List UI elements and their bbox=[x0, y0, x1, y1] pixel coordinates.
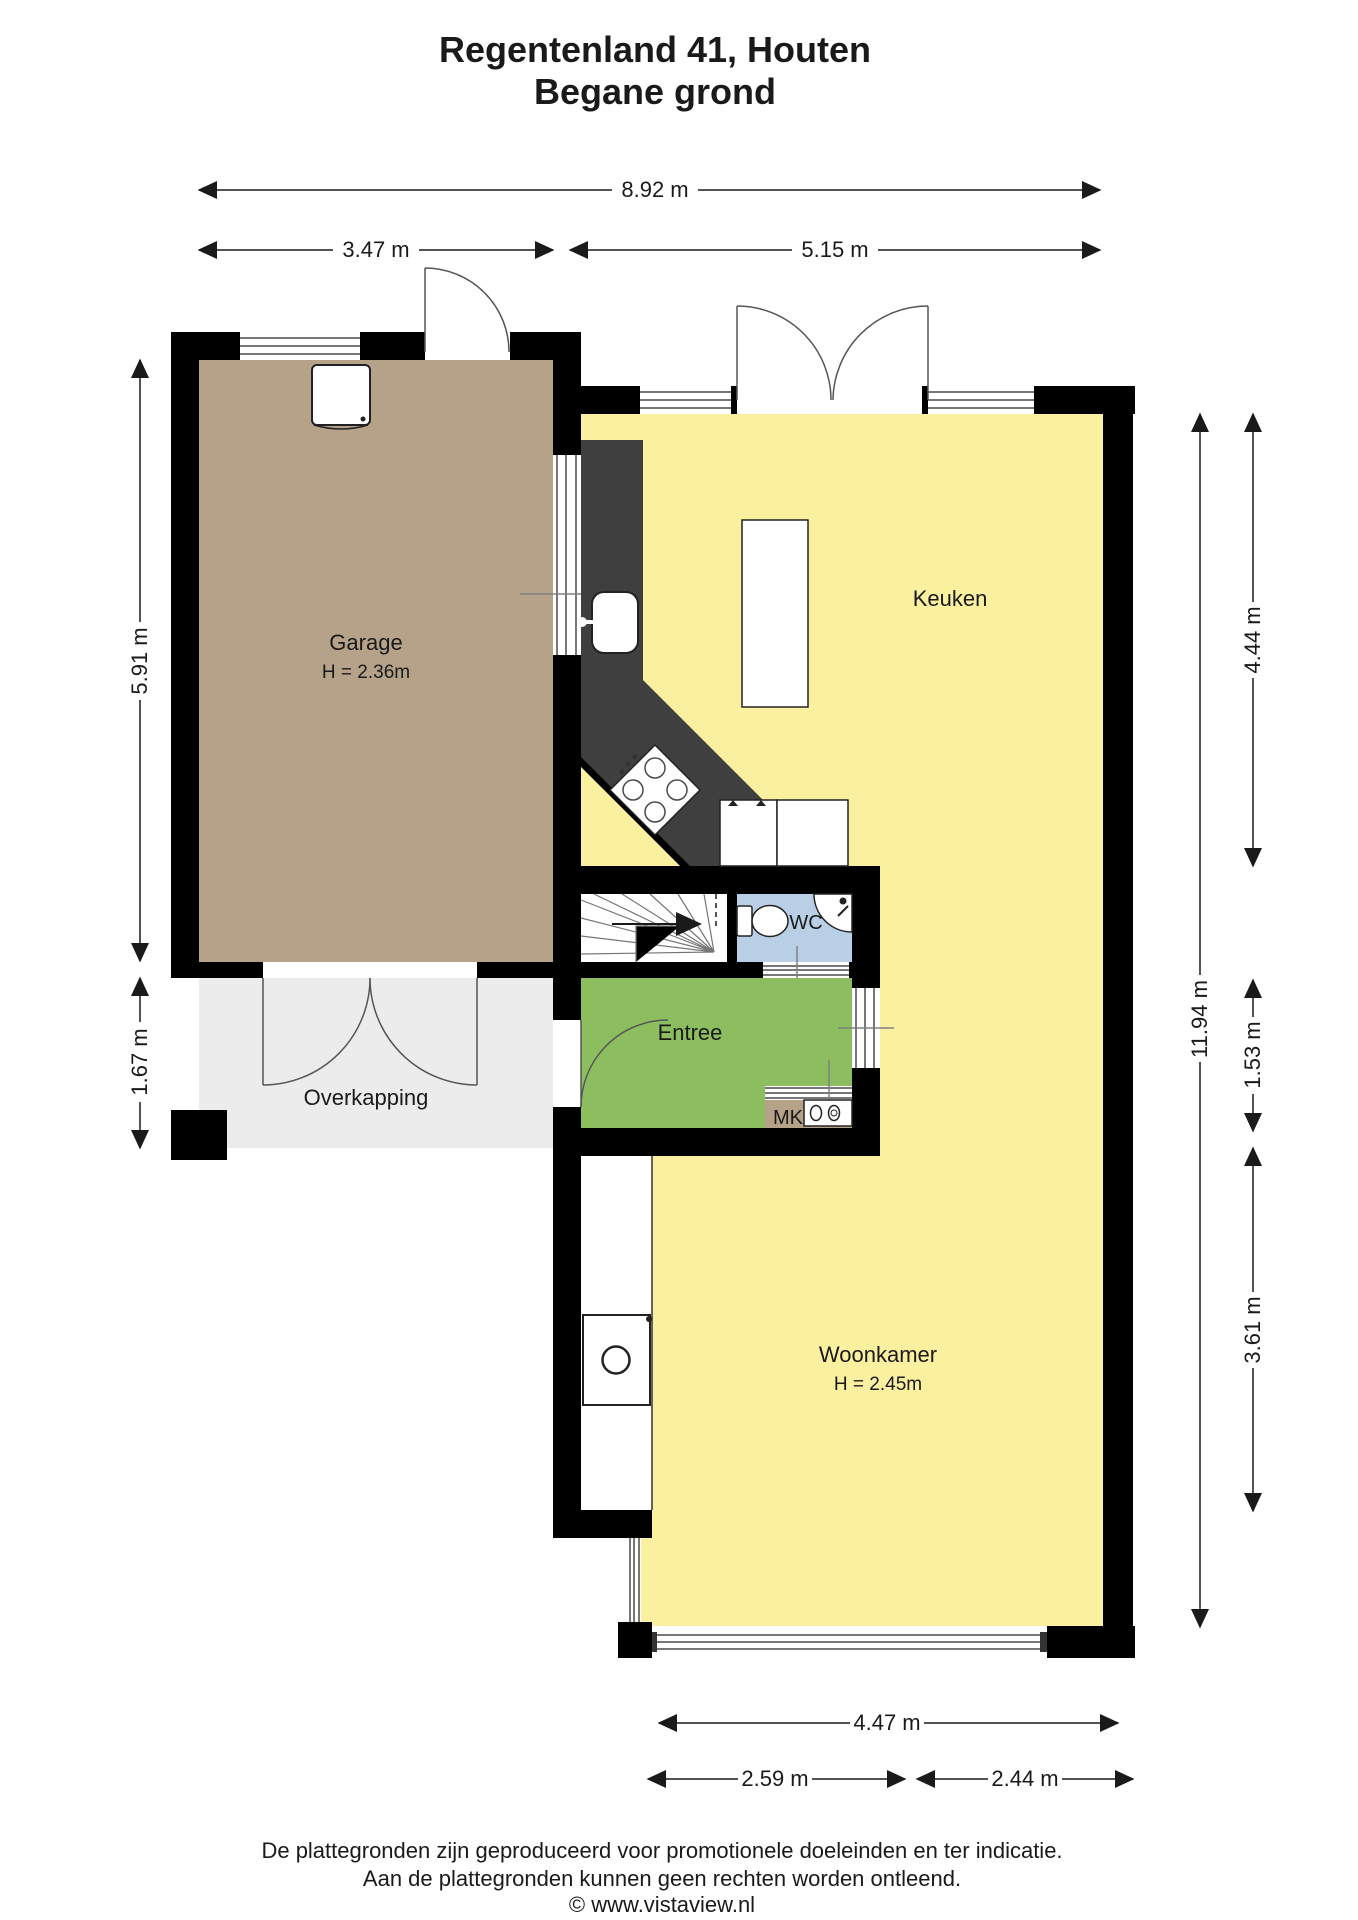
svg-text:8.92 m: 8.92 m bbox=[621, 177, 688, 202]
mk-label: MK bbox=[773, 1107, 804, 1129]
svg-text:5.91 m: 5.91 m bbox=[127, 627, 152, 694]
wall-west-woonkamer bbox=[553, 1107, 581, 1510]
wall-southeast-corner bbox=[1047, 1626, 1135, 1658]
footer-disclaimer: De plattegronden zijn geproduceerd voor … bbox=[261, 1838, 1062, 1917]
overkapping-label: Overkapping bbox=[304, 1085, 429, 1110]
wall-garage-bottom-right bbox=[477, 962, 553, 978]
wall-kitchen-hall bbox=[581, 866, 880, 894]
wall-garage-kitchen-upper bbox=[553, 332, 581, 455]
woonkamer-label: Woonkamer bbox=[819, 1342, 937, 1367]
wall-overkapping-post bbox=[171, 1110, 227, 1160]
floor-areas bbox=[199, 360, 1103, 1626]
wall-entree-bottom bbox=[553, 1128, 880, 1156]
kitchen-cabinets bbox=[720, 800, 848, 866]
svg-text:2.59 m: 2.59 m bbox=[741, 1766, 808, 1791]
corridor-floor bbox=[880, 866, 1103, 1156]
svg-text:5.15 m: 5.15 m bbox=[801, 237, 868, 262]
svg-text:4.44 m: 4.44 m bbox=[1240, 606, 1265, 673]
title-address: Regentenland 41, Houten bbox=[439, 29, 871, 70]
wall-stairs-bottom bbox=[581, 962, 763, 978]
footer-line-2: Aan de plattegronden kunnen geen rechten… bbox=[363, 1866, 961, 1891]
dim-right-total: 11.94 m bbox=[1187, 414, 1212, 1627]
woonkamer-height-label: H = 2.45m bbox=[834, 1374, 922, 1395]
dim-top-total: 8.92 m bbox=[199, 177, 1100, 202]
dim-right-kitchen: 4.44 m bbox=[1240, 414, 1265, 866]
plan-title: Regentenland 41, Houten Begane grond bbox=[439, 29, 871, 112]
dim-bottom-left: 2.59 m bbox=[648, 1766, 905, 1791]
jamb-kitchen-door-left bbox=[731, 386, 737, 414]
garage-height-label: H = 2.36m bbox=[322, 662, 410, 683]
dim-top-left: 3.47 m bbox=[199, 237, 553, 262]
wall-garage-top-mid bbox=[360, 332, 425, 360]
kitchen-island bbox=[742, 520, 808, 707]
jamb-kitchen-window2-right bbox=[1034, 386, 1040, 414]
overkapping-floor bbox=[199, 978, 553, 1148]
svg-text:3.47 m: 3.47 m bbox=[342, 237, 409, 262]
entree-label: Entree bbox=[658, 1020, 723, 1045]
dim-right-woonkamer: 3.61 m bbox=[1240, 1148, 1265, 1511]
floorplan-canvas: Regentenland 41, Houten Begane grond bbox=[0, 0, 1358, 1920]
wall-garage-kitchen-mid bbox=[553, 655, 581, 1020]
keuken-label: Keuken bbox=[913, 586, 988, 611]
svg-text:3.61 m: 3.61 m bbox=[1240, 1296, 1265, 1363]
toilet-icon bbox=[737, 906, 788, 937]
wall-closet-bottom bbox=[553, 1510, 652, 1538]
wall-southwest-corner bbox=[618, 1622, 652, 1658]
title-floor: Begane grond bbox=[534, 71, 776, 112]
footer-copyright: © www.vistaview.nl bbox=[569, 1892, 755, 1917]
footer-line-1: De plattegronden zijn geproduceerd voor … bbox=[261, 1838, 1062, 1863]
wall-east bbox=[1103, 386, 1133, 1626]
garage-floor bbox=[199, 360, 553, 962]
jamb-kitchen-window1-left bbox=[634, 386, 640, 414]
wall-wc-bottom-right bbox=[849, 962, 880, 978]
svg-text:4.47 m: 4.47 m bbox=[853, 1710, 920, 1735]
garage-label: Garage bbox=[329, 630, 402, 655]
svg-text:1.53 m: 1.53 m bbox=[1240, 1021, 1265, 1088]
dim-left-overkapping: 1.67 m bbox=[127, 978, 152, 1148]
kitchen-french-doors bbox=[737, 306, 928, 400]
jamb-kitchen-door-right bbox=[922, 386, 928, 414]
dim-right-entree: 1.53 m bbox=[1240, 980, 1265, 1131]
kitchen-window-right bbox=[928, 388, 1034, 412]
wall-garage-bottom-left bbox=[199, 962, 263, 978]
dim-bottom-total: 4.47 m bbox=[659, 1710, 1118, 1735]
floorplan-page: Regentenland 41, Houten Begane grond bbox=[0, 0, 1358, 1920]
kitchen-window-left bbox=[640, 388, 731, 412]
wall-kitchen-top-left bbox=[581, 386, 640, 414]
svg-text:11.94 m: 11.94 m bbox=[1187, 980, 1212, 1058]
wall-stairs-wc-divider bbox=[727, 894, 737, 966]
dim-bottom-right: 2.44 m bbox=[917, 1766, 1133, 1791]
dim-top-right: 5.15 m bbox=[570, 237, 1100, 262]
wall-garage-left bbox=[171, 332, 199, 978]
garage-top-window bbox=[240, 334, 360, 358]
dim-left-garage: 5.91 m bbox=[127, 360, 152, 961]
meter-cabinet-icon bbox=[804, 1100, 852, 1126]
wc-label: WC bbox=[789, 912, 822, 934]
garage-exterior-door bbox=[425, 268, 509, 352]
svg-text:2.44 m: 2.44 m bbox=[991, 1766, 1058, 1791]
woonkamer-west-window bbox=[628, 1538, 641, 1622]
garage-appliance-icon bbox=[312, 365, 370, 429]
svg-text:1.67 m: 1.67 m bbox=[127, 1028, 152, 1095]
woonkamer-south-windows bbox=[652, 1632, 1047, 1652]
